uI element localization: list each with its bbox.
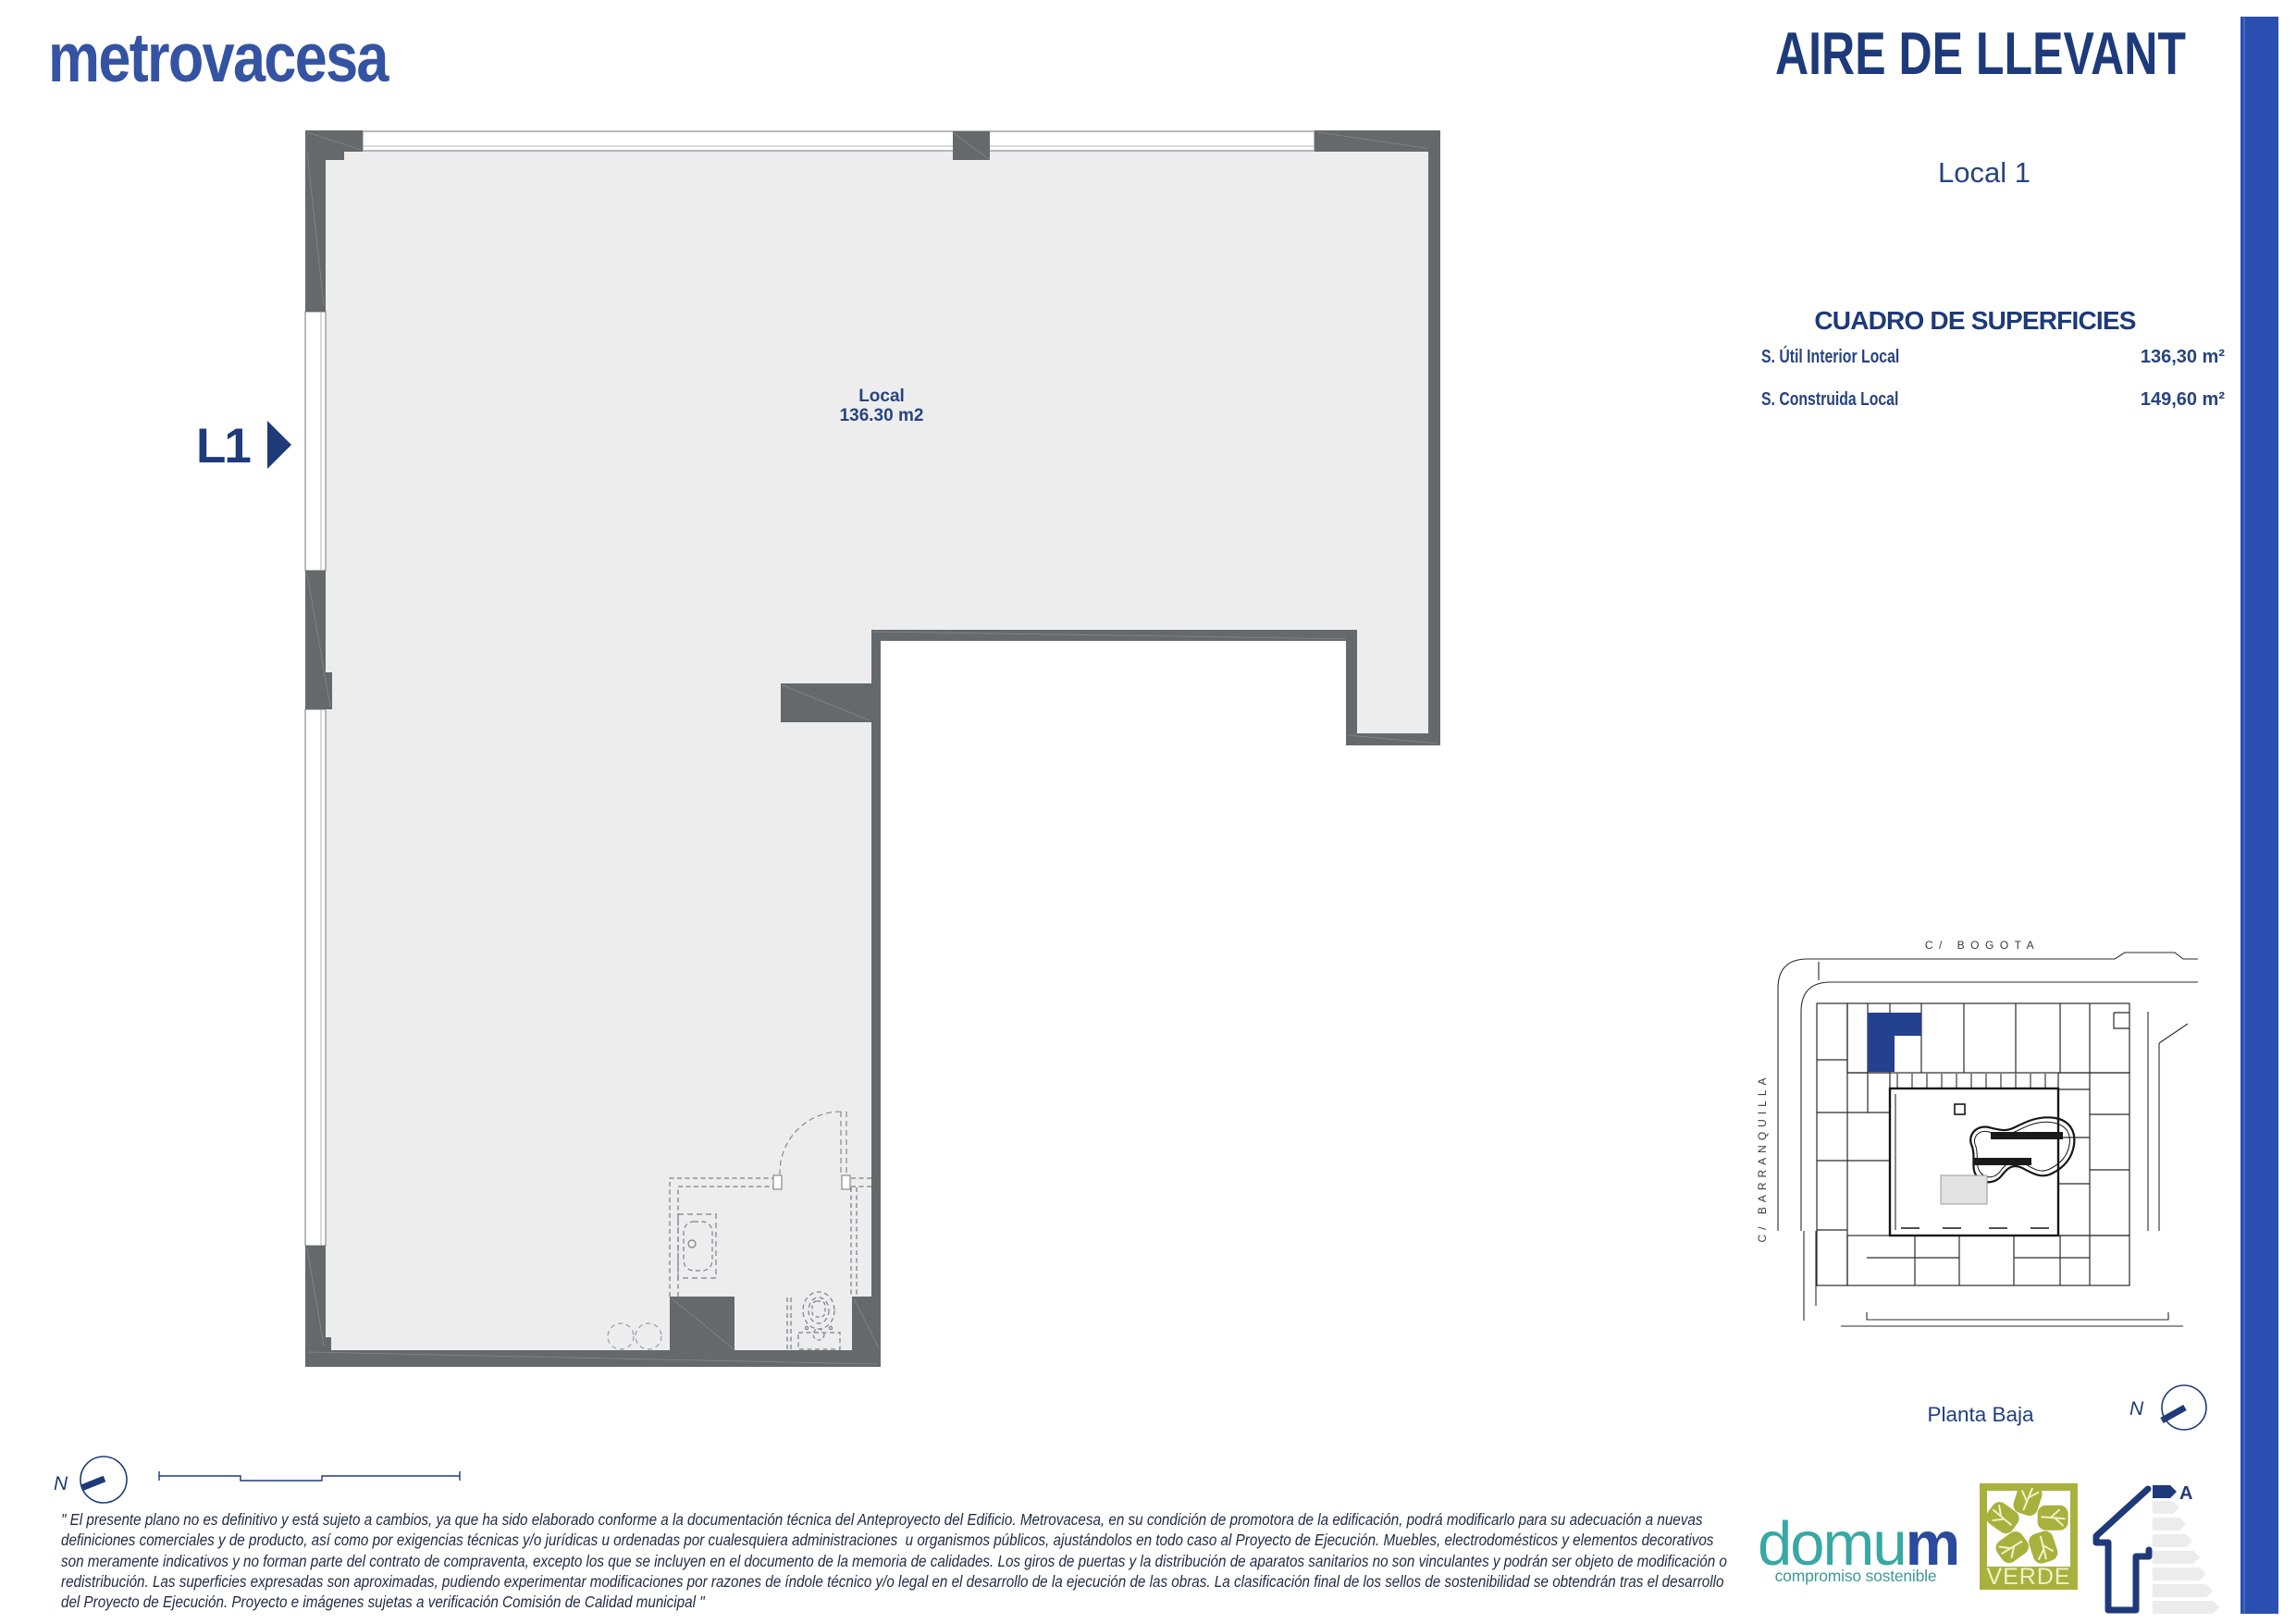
- svg-text:136.30 m2: 136.30 m2: [840, 406, 924, 425]
- svg-text:Local: Local: [858, 387, 905, 406]
- svg-text:C/ BARRANQUILLA: C/ BARRANQUILLA: [1756, 1073, 1769, 1242]
- svg-text:VERDE: VERDE: [1986, 1564, 2070, 1590]
- svg-text:N: N: [2129, 1398, 2144, 1420]
- svg-text:A: A: [2179, 1483, 2192, 1504]
- svg-text:N: N: [54, 1473, 68, 1494]
- svg-text:C/ BOGOTA: C/ BOGOTA: [1925, 939, 2040, 952]
- svg-text:Planta Baja: Planta Baja: [1927, 1403, 2034, 1426]
